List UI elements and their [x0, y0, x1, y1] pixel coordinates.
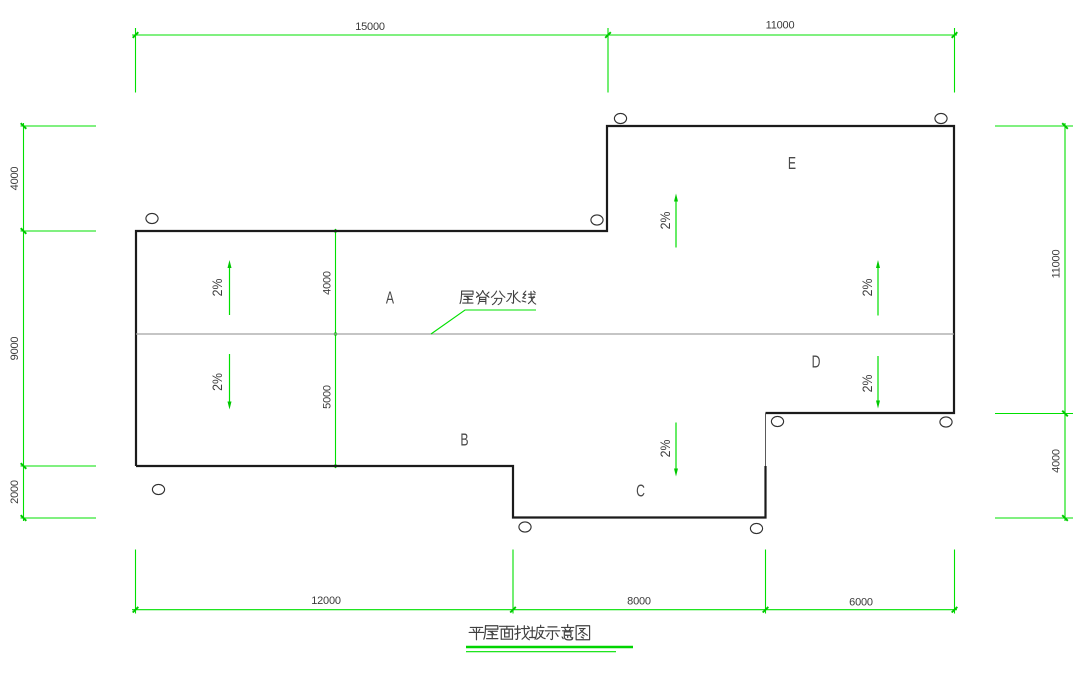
svg-text:5000: 5000	[322, 385, 334, 409]
svg-text:15000: 15000	[355, 21, 385, 33]
svg-text:2%: 2%	[657, 211, 673, 229]
svg-text:6000: 6000	[849, 597, 873, 609]
svg-text:11000: 11000	[1051, 250, 1063, 279]
svg-text:11000: 11000	[766, 20, 795, 32]
svg-text:12000: 12000	[311, 595, 341, 607]
svg-text:C: C	[636, 481, 645, 501]
svg-text:D: D	[812, 352, 821, 372]
svg-text:4000: 4000	[9, 167, 21, 191]
svg-text:E: E	[788, 154, 796, 174]
svg-text:2%: 2%	[209, 278, 225, 296]
svg-text:B: B	[460, 430, 468, 450]
svg-text:4000: 4000	[1051, 449, 1063, 473]
svg-text:A: A	[386, 288, 395, 308]
svg-text:2%: 2%	[859, 374, 875, 392]
svg-text:9000: 9000	[9, 337, 21, 361]
svg-text:2000: 2000	[9, 480, 21, 504]
svg-text:2%: 2%	[657, 439, 673, 457]
svg-text:8000: 8000	[627, 596, 651, 608]
svg-text:2%: 2%	[209, 373, 225, 391]
svg-text:4000: 4000	[322, 271, 334, 295]
svg-text:2%: 2%	[859, 278, 875, 296]
